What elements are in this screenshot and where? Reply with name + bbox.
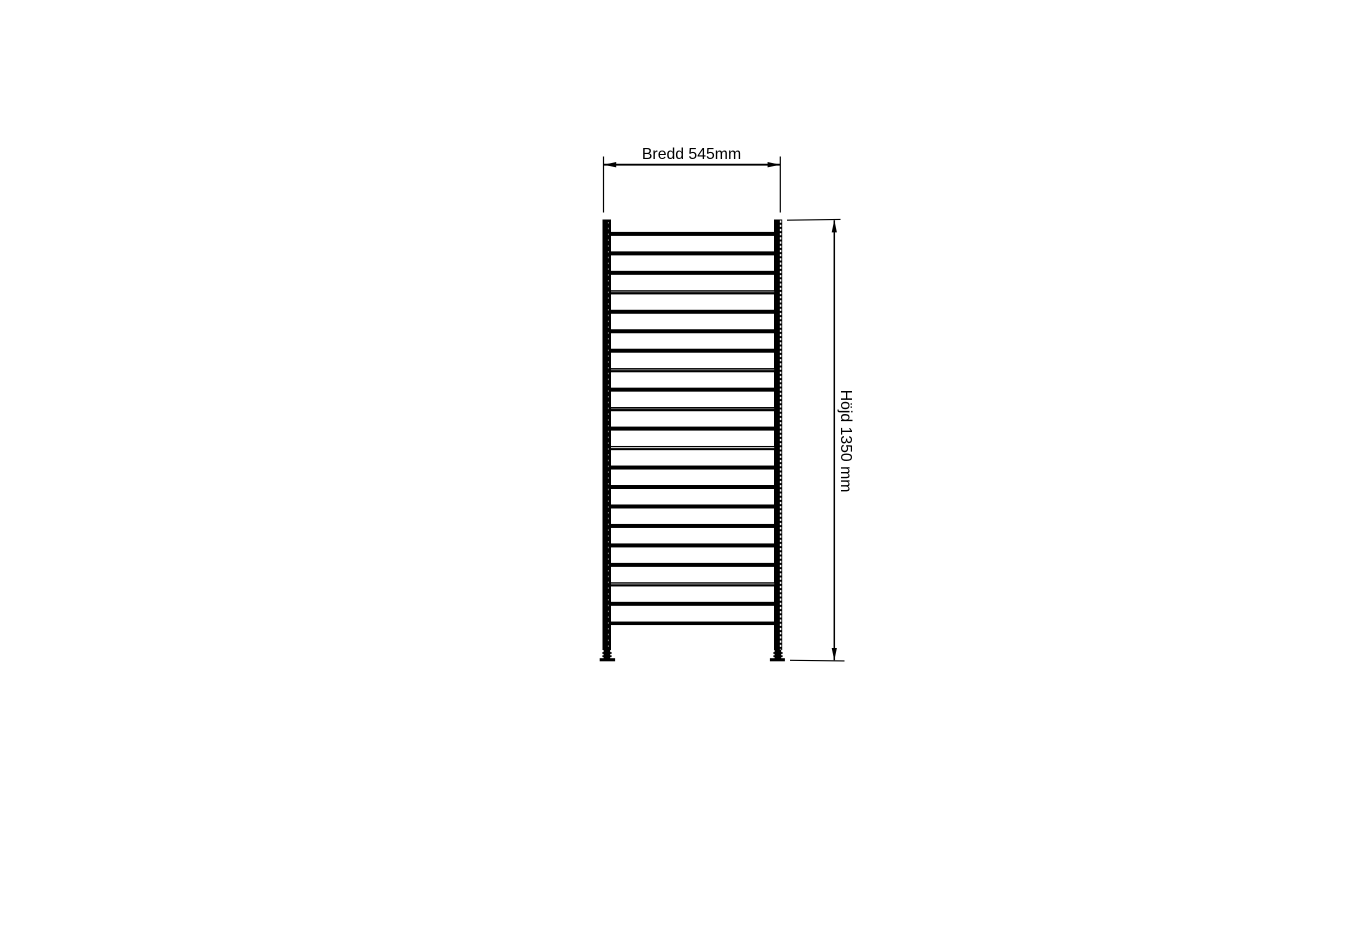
svg-text:Bredd 545mm: Bredd 545mm (642, 146, 741, 163)
svg-text:Höjd 1350 mm: Höjd 1350 mm (837, 390, 854, 493)
